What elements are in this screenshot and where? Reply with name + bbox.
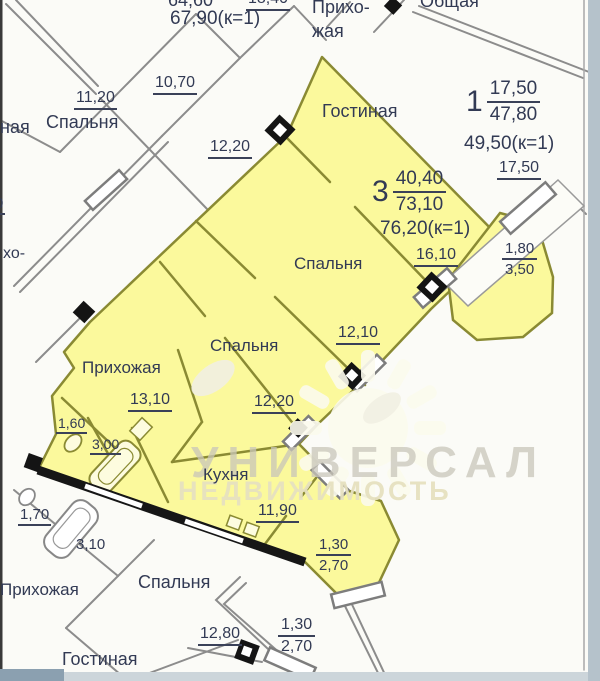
room-label-hall-top-line2: жая (312, 22, 344, 41)
dim-balcony-bottom-width: 1,30 (316, 536, 351, 556)
dim-corridor: 12,20 (208, 139, 252, 159)
room-label-living: Гостиная (322, 102, 398, 121)
apartment1-total-area: 47,80 (487, 103, 541, 126)
floor-plan: Спальня 11,20 10,70 64,60 18,40 67,90(к=… (0, 0, 600, 681)
dim-balcony-bottom: 1,30 2,70 (316, 536, 351, 574)
apartment1-living-area: 17,50 (487, 78, 541, 103)
room-label-partial-ho: хо- (3, 246, 25, 263)
dim-bedroom2: 12,10 (336, 325, 380, 345)
room-label-hall: Прихожая (82, 359, 161, 377)
room-label-bedroom2: Спальня (210, 337, 278, 355)
room-label-partial-naya: ная (0, 118, 30, 137)
dim-neighbor-balcony: 1,30 2,70 (278, 616, 315, 656)
apartment3-living-area: 40,40 (393, 168, 447, 193)
dim-balcony-bottom-area: 2,70 (316, 556, 351, 574)
dim-wc: 1,60 (56, 416, 87, 434)
apartment3-number: 3 (372, 175, 389, 209)
room-label-living-bottom: Гостиная (62, 650, 138, 669)
apartment1-areas: 1 17,50 47,80 (466, 78, 540, 126)
apartment3-total-area: 73,10 (393, 193, 447, 216)
dim-balcony-right-area: 3,50 (502, 260, 537, 278)
dim-top-coef: 67,90(к=1) (170, 9, 260, 29)
room-label-bedroom1: Спальня (294, 255, 362, 273)
dim-neighbor-balcony-width: 1,30 (278, 616, 315, 637)
dim-balcony-right-width: 1,80 (502, 240, 537, 260)
dim-topleft-bedroom: 11,20 (74, 90, 117, 110)
dim-bedroom3: 12,20 (252, 394, 296, 414)
apartment1-coef: 49,50(к=1) (464, 134, 554, 154)
dim-neighbor-bedroom: 12,80 (198, 626, 242, 646)
dim-neighbor-balcony-area: 2,70 (278, 637, 315, 656)
room-label-bedroom-bottom: Спальня (138, 573, 210, 592)
dim-neighbor-wc: 1,70 (18, 507, 51, 526)
room-label-hall-top-line1: Прихо- (312, 0, 370, 17)
dim-topleft-hall: 10,70 (153, 75, 197, 95)
dim-bath: 3,00 (90, 437, 121, 455)
dim-balcony-right: 1,80 3,50 (502, 240, 537, 278)
dim-bedroom1: 16,10 (414, 247, 458, 267)
dim-kitchen: 11,90 (256, 503, 299, 523)
dim-hall: 13,10 (128, 392, 172, 412)
dim-neighbor-bath: 3,10 (76, 537, 105, 553)
room-label-hall-bottom: Прихожая (0, 581, 79, 599)
room-label-common: Общая (420, 0, 479, 11)
apartment3-areas: 3 40,40 73,10 (372, 168, 446, 216)
room-label-kitchen: Кухня (203, 466, 249, 484)
room-label-bedroom-topleft: Спальня (46, 113, 118, 132)
apartment1-number: 1 (466, 85, 483, 119)
dim-apt1-room: 17,50 (497, 160, 541, 180)
dim-partial-left: 0 (0, 196, 5, 215)
apartment3-coef: 76,20(к=1) (380, 219, 470, 239)
